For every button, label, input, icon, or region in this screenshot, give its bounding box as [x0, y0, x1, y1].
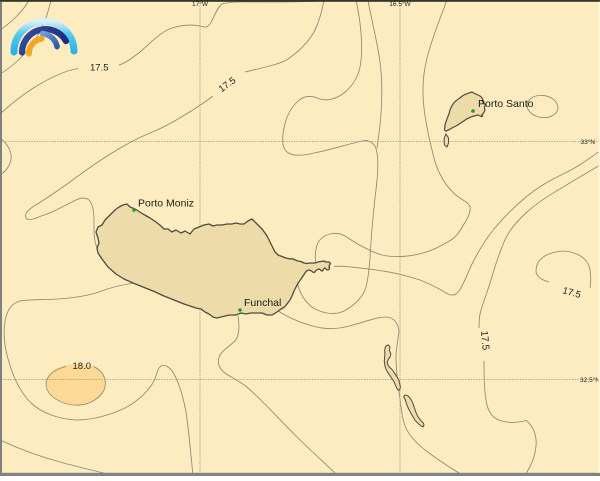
svg-text:18.0: 18.0: [73, 361, 92, 372]
svg-text:Funchal: Funchal: [244, 297, 281, 309]
svg-text:17.5: 17.5: [478, 330, 491, 351]
svg-text:Porto Moniz: Porto Moniz: [138, 198, 194, 210]
svg-text:Porto Santo: Porto Santo: [478, 98, 534, 110]
svg-text:32.5°N: 32.5°N: [580, 376, 600, 384]
svg-text:17.5: 17.5: [90, 63, 109, 74]
svg-text:33°N: 33°N: [580, 138, 595, 146]
